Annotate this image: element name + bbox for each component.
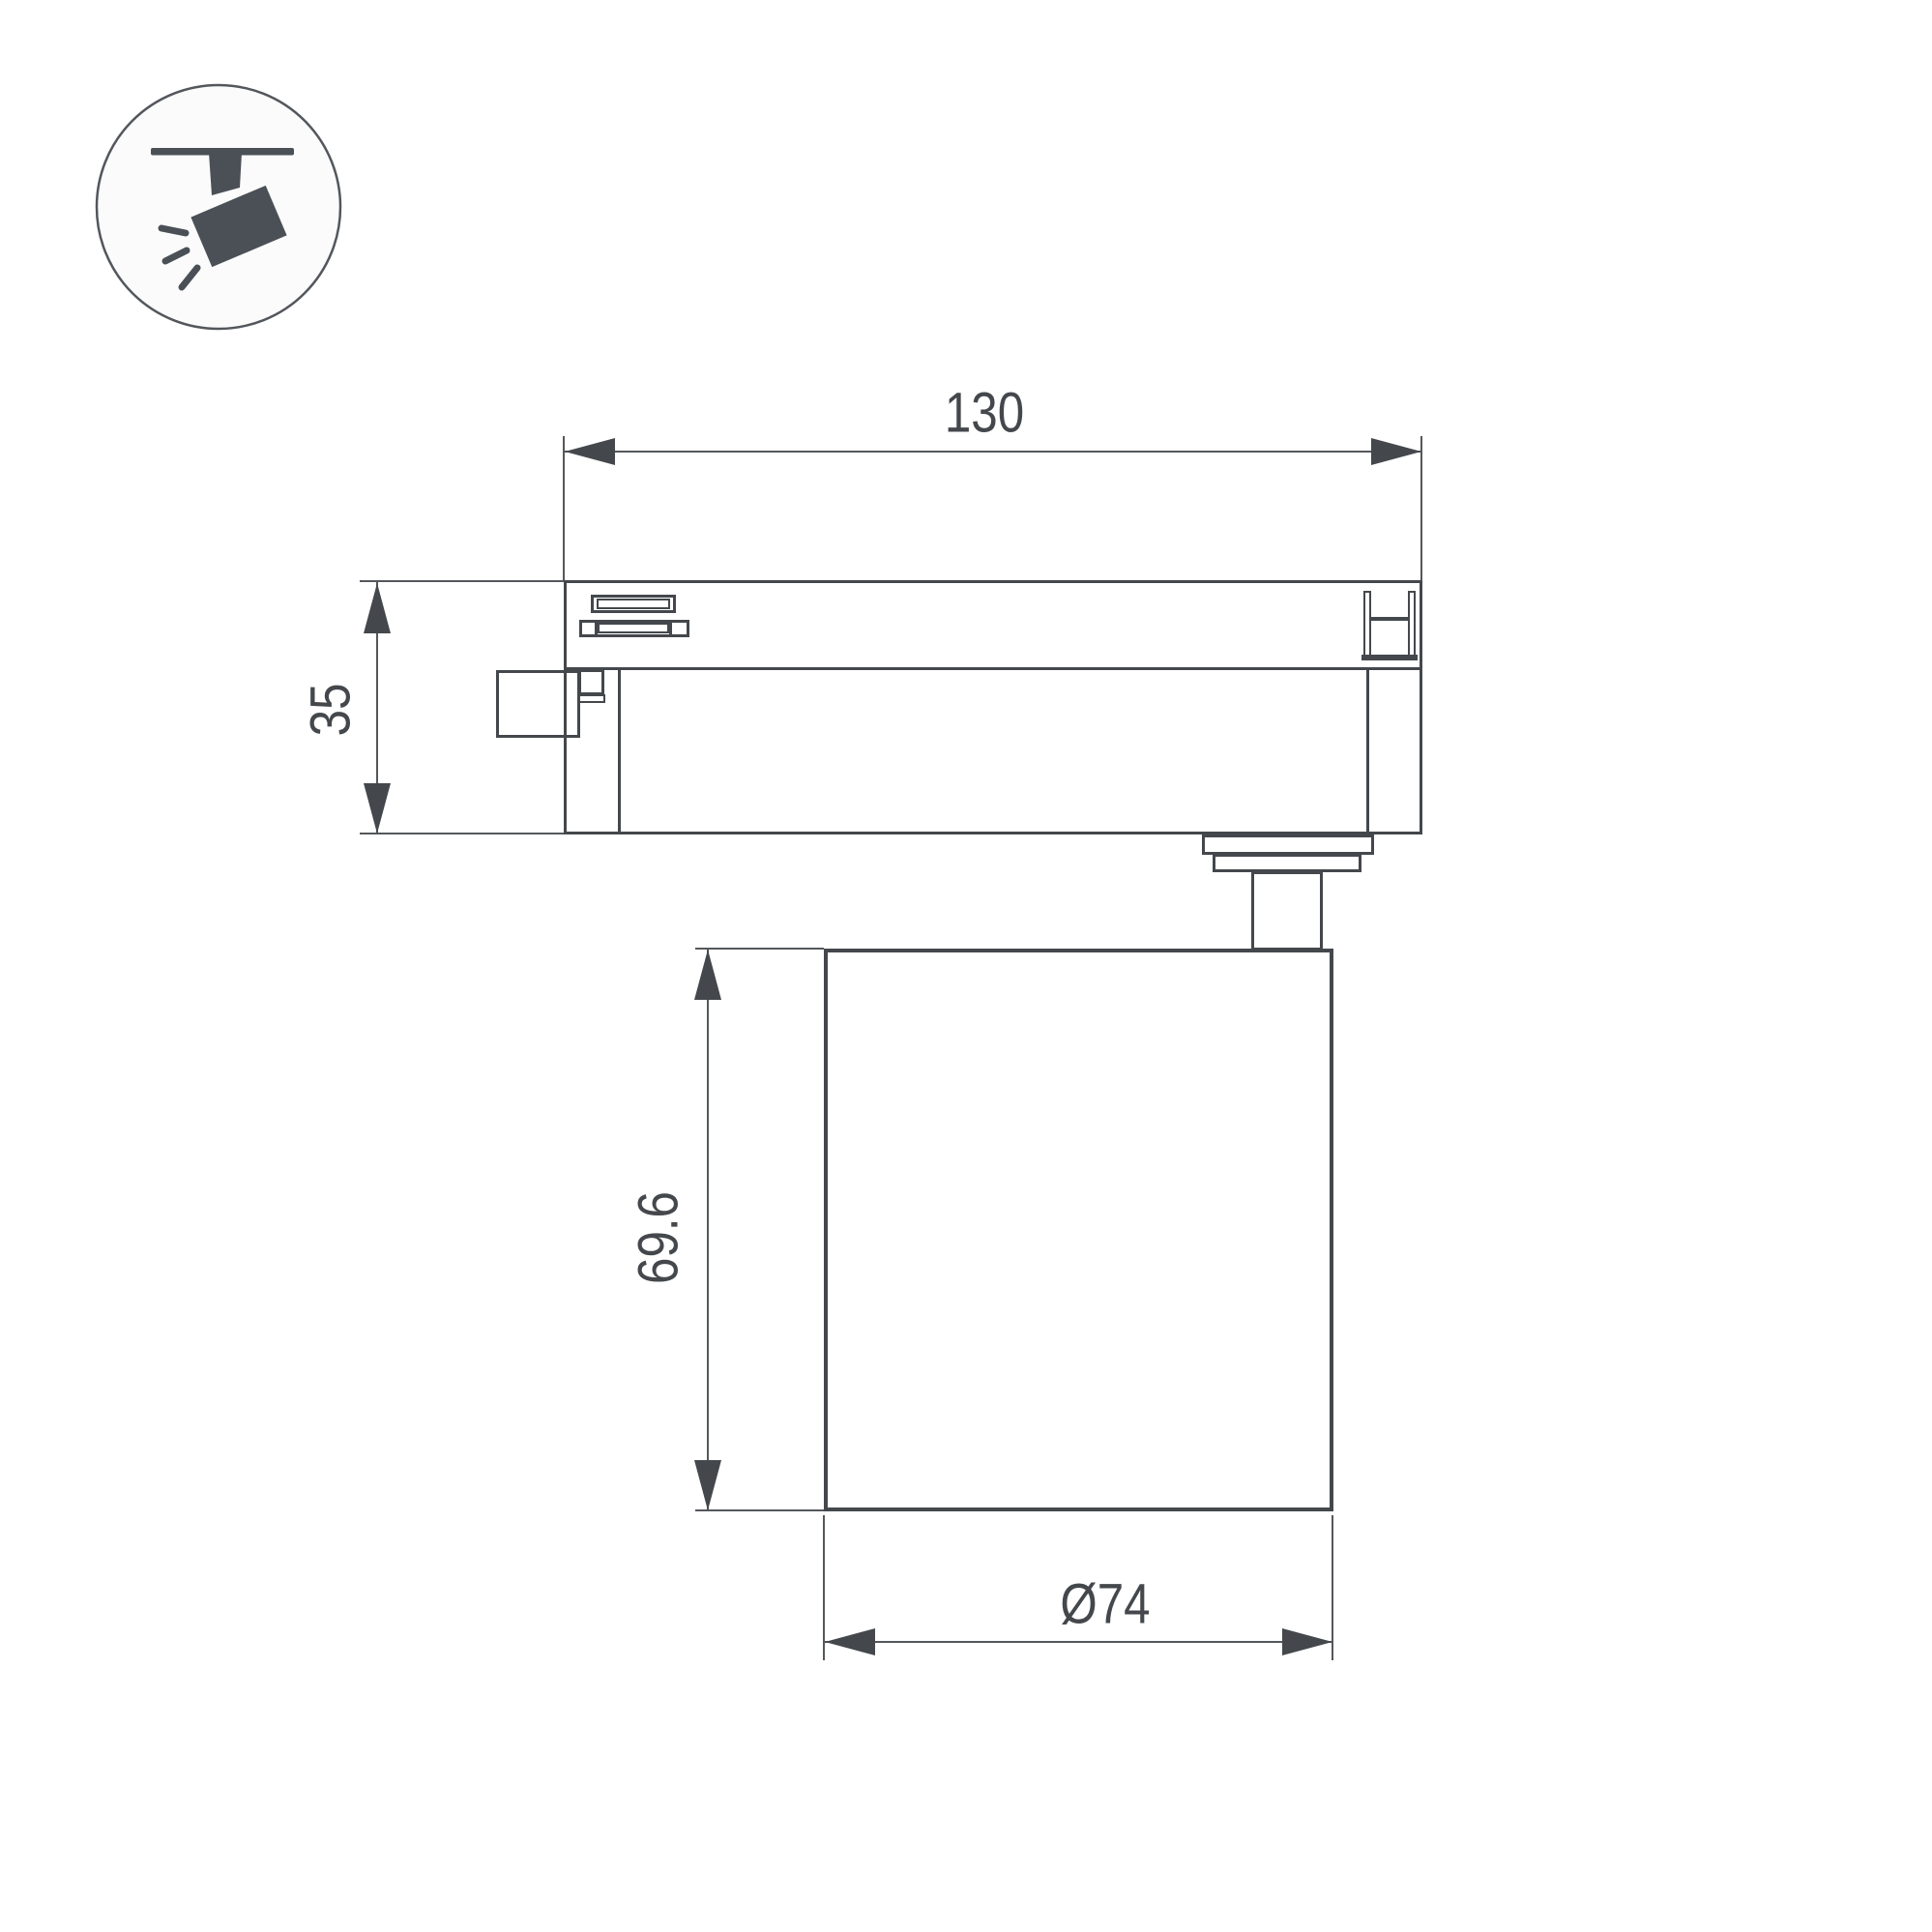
extension-line-top (360, 580, 564, 582)
adapter-inner-wall-left (618, 670, 621, 834)
spring-clip-base (1361, 655, 1418, 660)
arrowhead-left-icon (565, 438, 615, 465)
dim-label-track-width: 130 (945, 381, 1024, 446)
lamp-head-body (824, 949, 1333, 1511)
spring-clip-left-leg (1363, 591, 1371, 659)
contact-clip-b-right-end (669, 620, 672, 637)
dimension-line (824, 1641, 1333, 1643)
arrowhead-down-icon (364, 783, 391, 834)
track-spotlight-icon (94, 82, 343, 332)
dim-label-head-diameter: Ø74 (1060, 1572, 1150, 1637)
arrowhead-up-icon (694, 950, 721, 1000)
spring-clip-right-leg (1408, 591, 1416, 659)
adapter-inner-wall-right (1366, 670, 1369, 834)
arrowhead-right-icon (1282, 1628, 1332, 1655)
pivot-flange-lower (1213, 854, 1361, 872)
contact-clip-a-inner (597, 599, 670, 609)
lever-tab (578, 694, 605, 703)
spring-clip-rung (1371, 617, 1408, 621)
arrowhead-left-icon (825, 1628, 875, 1655)
dimension-line (564, 451, 1422, 453)
dim-label-track-height: 35 (299, 684, 364, 737)
technical-drawing: 130 35 (0, 0, 1932, 1932)
dimension-line (707, 949, 709, 1511)
pivot-flange-upper (1202, 834, 1374, 855)
dim-label-head-height: 69.6 (627, 1191, 691, 1284)
adapter-section-divider (564, 667, 1422, 670)
pivot-stem (1251, 871, 1323, 951)
arrowhead-right-icon (1371, 438, 1421, 465)
arrowhead-down-icon (694, 1460, 721, 1510)
arrowhead-up-icon (364, 583, 391, 633)
adapter-outline (564, 580, 1422, 834)
lever-notch (578, 669, 604, 695)
locking-lever (496, 670, 580, 738)
contact-clip-b-inner (598, 623, 669, 633)
